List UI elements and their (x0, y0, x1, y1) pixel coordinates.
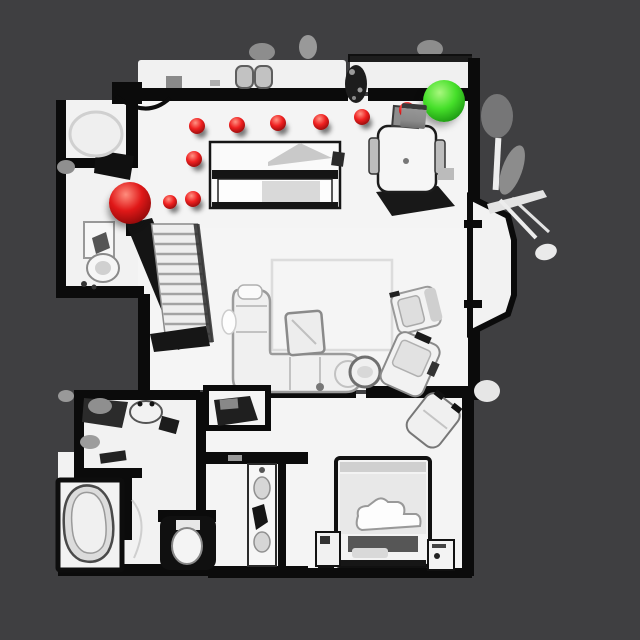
waypoint-marker-8 (163, 195, 177, 209)
chair-headrest-occluder (400, 103, 427, 129)
waypoint-marker-2 (229, 117, 245, 133)
waypoint-marker-7 (186, 151, 202, 167)
markers-layer (0, 0, 640, 640)
waypoint-marker-5 (354, 109, 370, 125)
waypoint-marker-4 (313, 114, 329, 130)
waypoint-marker-1 (189, 118, 205, 134)
goal-marker (423, 80, 465, 122)
waypoint-marker-9 (185, 191, 201, 207)
floor-map-stage (0, 0, 640, 640)
start-marker (109, 182, 151, 224)
waypoint-marker-3 (270, 115, 286, 131)
